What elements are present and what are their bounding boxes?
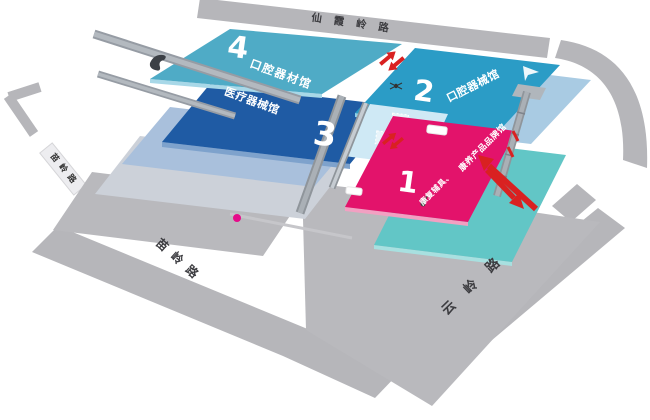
roof-vent-1 (427, 125, 448, 135)
roof-vent-2 (346, 187, 363, 196)
road-sign-miaoling: 苗岭路 (40, 143, 86, 195)
site-map: 苗岭路 (0, 0, 650, 420)
location-dot (233, 214, 241, 222)
road-ring-curve (555, 40, 647, 168)
road-corner-west (8, 87, 40, 134)
